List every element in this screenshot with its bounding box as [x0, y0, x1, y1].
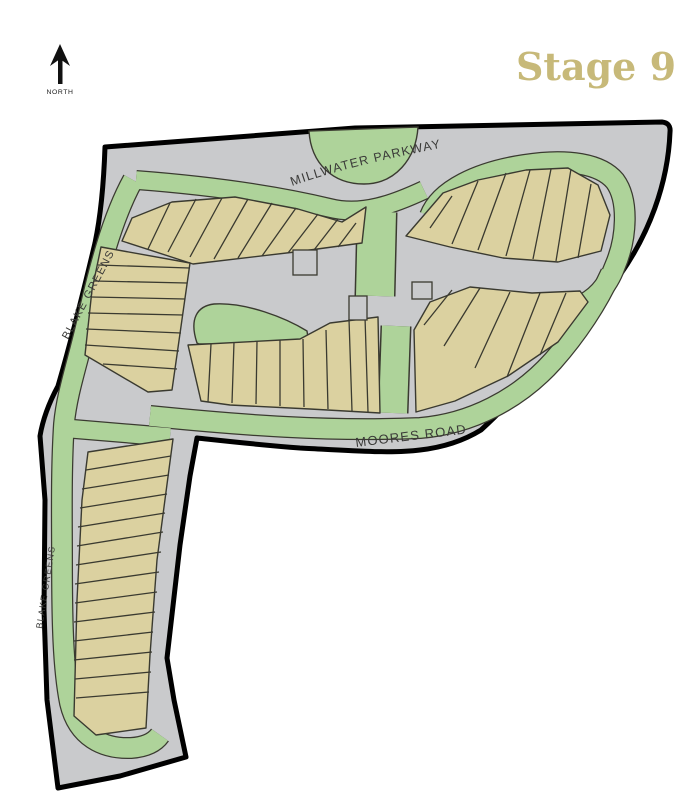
road-stub-1 [293, 250, 317, 275]
north-arrow-stem [58, 58, 63, 84]
stage-title: Stage 9 [516, 44, 676, 89]
road-stub-2 [349, 296, 367, 320]
subdivision-stage-plan: NORTH Stage 9 [0, 0, 700, 810]
north-label: NORTH [46, 89, 73, 96]
north-compass: NORTH [46, 44, 73, 96]
road-stub-3 [412, 282, 432, 299]
